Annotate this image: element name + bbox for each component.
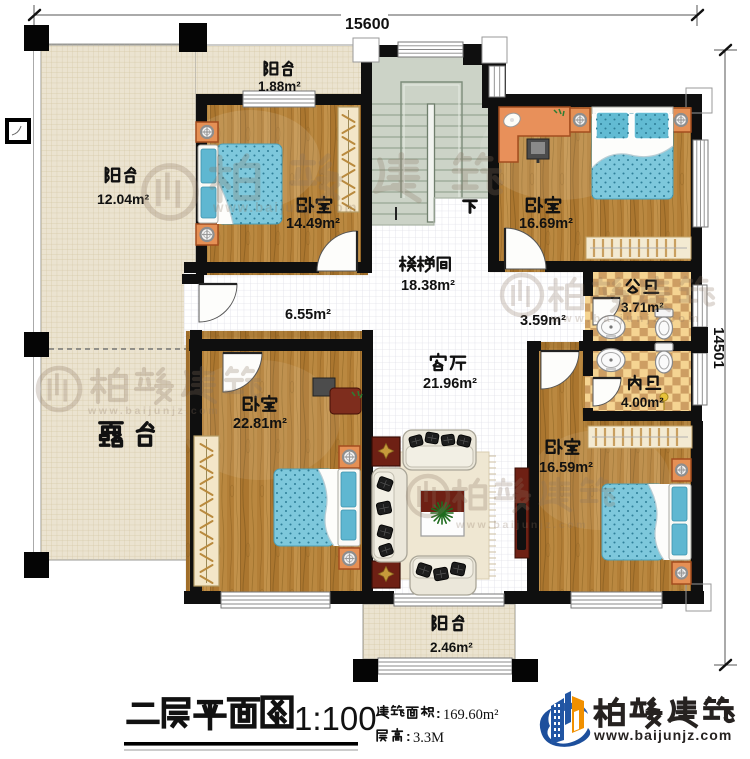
svg-text:www.baijunjz.com: www.baijunjz.com bbox=[550, 313, 702, 325]
svg-text:www.baijunjz.com: www.baijunjz.com bbox=[593, 727, 732, 743]
svg-text:18.38m²: 18.38m² bbox=[401, 278, 455, 294]
svg-text:2.46m²: 2.46m² bbox=[430, 640, 473, 655]
svg-text:16.59m²: 16.59m² bbox=[539, 460, 593, 476]
svg-text:4.00m²: 4.00m² bbox=[621, 395, 664, 410]
svg-text:www.baijunjz.com: www.baijunjz.com bbox=[87, 405, 220, 417]
svg-text:6.55m²: 6.55m² bbox=[285, 307, 331, 323]
svg-text:1.88m²: 1.88m² bbox=[258, 79, 301, 94]
svg-text:14.49m²: 14.49m² bbox=[286, 216, 340, 232]
svg-text:3.3M: 3.3M bbox=[413, 730, 444, 746]
svg-text:21.96m²: 21.96m² bbox=[423, 376, 477, 392]
svg-text:1:100: 1:100 bbox=[294, 700, 377, 737]
svg-text:169.60m²: 169.60m² bbox=[443, 707, 499, 723]
svg-text:www.baijunjz.com: www.baijunjz.com bbox=[212, 200, 358, 215]
svg-text:www.baijunjz.com: www.baijunjz.com bbox=[455, 519, 588, 531]
svg-text:22.81m²: 22.81m² bbox=[233, 416, 287, 432]
svg-text:15600: 15600 bbox=[345, 16, 390, 33]
svg-text:14501: 14501 bbox=[710, 327, 727, 369]
svg-text:16.69m²: 16.69m² bbox=[519, 216, 573, 232]
svg-text::: : bbox=[436, 705, 441, 721]
svg-text::: : bbox=[406, 728, 411, 744]
